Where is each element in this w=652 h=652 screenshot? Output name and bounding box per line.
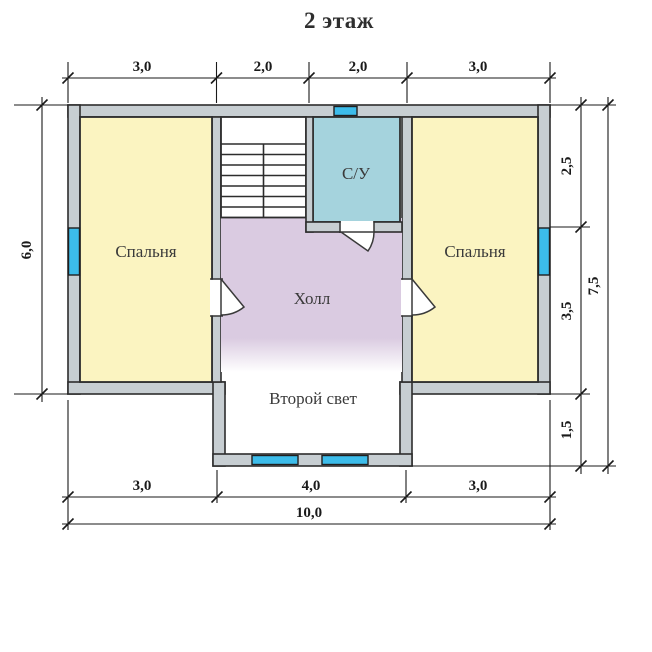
window-left-wall [69, 228, 80, 275]
label-hall: Холл [294, 289, 331, 308]
dim-right-1: 2,5 [559, 157, 575, 176]
label-bathroom: С/У [342, 164, 371, 183]
dimension-left: 6,0 [14, 97, 68, 402]
dim-top-4: 3,0 [469, 59, 488, 75]
wall-bottom-left [68, 382, 225, 394]
label-bedroom-right: Спальня [444, 242, 505, 261]
dimension-top: 3,0 2,0 2,0 3,0 [62, 59, 556, 103]
dim-right-3: 1,5 [559, 421, 575, 440]
dim-bottom-2: 4,0 [302, 478, 321, 494]
window-bathroom-top [334, 107, 357, 116]
wall-bottom-right [400, 382, 550, 394]
dim-top-3: 2,0 [349, 59, 368, 75]
door-opening-right-bedroom [401, 280, 413, 316]
dim-left: 6,0 [19, 241, 35, 260]
dim-bottom-total: 10,0 [296, 505, 322, 521]
wall-partition-left [212, 117, 221, 382]
dim-bottom-3: 3,0 [469, 478, 488, 494]
label-void: Второй свет [269, 389, 357, 408]
window-right-wall [539, 228, 550, 275]
label-bedroom-left: Спальня [115, 242, 176, 261]
floor-plan-drawing: 3,0 2,0 2,0 3,0 6,0 2,5 3,5 1,5 [0, 0, 652, 652]
floor-plan-canvas: 2 этаж [0, 0, 652, 652]
window-bottom-1 [252, 456, 298, 465]
wall-protrusion-bottom [213, 454, 412, 466]
dim-right-2: 3,5 [559, 302, 575, 321]
wall-bathroom-left [306, 117, 313, 232]
door-opening-bathroom [341, 221, 374, 233]
dim-bottom-1: 3,0 [133, 478, 152, 494]
window-bottom-2 [322, 456, 368, 465]
dim-top-1: 3,0 [133, 59, 152, 75]
wall-top [68, 105, 550, 117]
wall-partition-right [402, 117, 412, 382]
dim-top-2: 2,0 [254, 59, 273, 75]
dim-right-total: 7,5 [586, 277, 602, 296]
